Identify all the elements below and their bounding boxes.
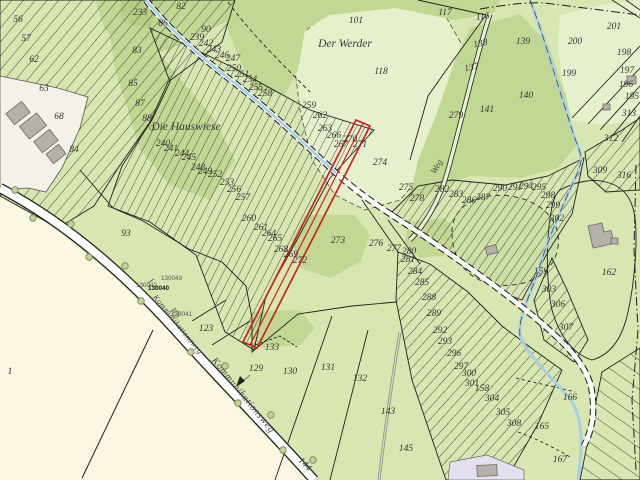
label-287: 287 <box>476 193 492 203</box>
label-68: 68 <box>54 112 64 122</box>
label-197: 197 <box>620 66 636 76</box>
label-86: 86 <box>158 19 168 29</box>
label-129: 129 <box>249 364 264 374</box>
label-284: 284 <box>408 267 423 277</box>
label-290: 290 <box>493 184 508 194</box>
label-130043: 130043 <box>161 275 183 282</box>
label-167: 167 <box>553 455 569 465</box>
label-285: 285 <box>415 278 430 288</box>
label-247: 247 <box>226 54 242 64</box>
label-305: 305 <box>495 408 511 418</box>
label-198: 198 <box>617 48 632 58</box>
label-265: 265 <box>268 234 283 244</box>
label-145: 145 <box>399 444 414 454</box>
label-56: 56 <box>13 15 23 25</box>
label-der-werder: Der Werder <box>317 38 372 50</box>
label-62: 62 <box>29 55 39 65</box>
building <box>477 464 498 476</box>
label-271: 271 <box>353 140 367 150</box>
label-131: 131 <box>321 363 335 373</box>
label-259: 259 <box>302 101 317 111</box>
tree-icon <box>68 221 74 227</box>
label-278: 278 <box>410 194 425 204</box>
label-196: 196 <box>619 80 634 90</box>
label-200: 200 <box>568 37 583 47</box>
tree-icon <box>280 447 286 453</box>
label-257: 257 <box>236 193 252 203</box>
label-133: 133 <box>265 343 280 353</box>
label-262: 262 <box>313 111 328 121</box>
label-312: 312 <box>603 134 619 144</box>
label-141: 141 <box>480 105 494 115</box>
label-93: 93 <box>121 229 131 239</box>
label-130041: 130041 <box>171 311 193 318</box>
label-288: 288 <box>422 293 437 303</box>
label-279: 279 <box>449 111 464 121</box>
label-63: 63 <box>39 84 49 94</box>
tree-icon <box>86 254 92 260</box>
map-viewport: 5657626368849312338286908385878810111711… <box>0 0 640 480</box>
label-281: 281 <box>401 255 415 265</box>
tree-icon <box>138 298 144 304</box>
label-162: 162 <box>602 268 617 278</box>
label-130: 130 <box>283 367 298 377</box>
label-258: 258 <box>258 89 273 99</box>
tree-icon <box>12 187 18 193</box>
tree-icon <box>310 457 316 463</box>
label-296: 296 <box>447 349 462 359</box>
label-233: 233 <box>133 8 148 18</box>
label-245: 245 <box>182 153 197 163</box>
label-313: 313 <box>621 109 637 119</box>
label-302: 302 <box>549 214 565 224</box>
label-306: 306 <box>550 300 566 310</box>
label-300: 300 <box>461 369 477 379</box>
label-57: 57 <box>21 34 32 44</box>
label-82: 82 <box>176 2 186 12</box>
label-274: 274 <box>373 158 388 168</box>
building <box>603 104 610 110</box>
label-123: 123 <box>199 324 214 334</box>
label-159: 159 <box>534 267 549 277</box>
label-282: 282 <box>435 185 450 195</box>
label-273: 273 <box>331 236 346 246</box>
label-84: 84 <box>69 145 79 155</box>
tree-icon <box>30 215 36 221</box>
label-87: 87 <box>135 99 146 109</box>
label-304: 304 <box>484 394 500 404</box>
label-199: 199 <box>562 69 577 79</box>
label-286: 286 <box>462 196 477 206</box>
label-die-hauswiese: Die Hauswiese <box>150 121 220 133</box>
label-277: 277 <box>387 244 403 254</box>
label-83: 83 <box>132 46 142 56</box>
label-117: 117 <box>438 8 453 18</box>
label-293: 293 <box>438 337 453 347</box>
label-165: 165 <box>535 422 550 432</box>
label-132: 132 <box>353 374 368 384</box>
label-140: 140 <box>519 91 534 101</box>
label-308: 308 <box>506 419 522 429</box>
label-195: 195 <box>625 92 640 102</box>
label-298: 298 <box>541 191 556 201</box>
building <box>611 238 618 244</box>
label-130040: 130040 <box>148 285 170 292</box>
label-1: 1 <box>8 367 13 377</box>
tree-icon <box>122 263 128 269</box>
label-201: 201 <box>607 22 621 32</box>
label-299: 299 <box>546 201 561 211</box>
label-85: 85 <box>128 79 138 89</box>
label-289: 289 <box>427 309 442 319</box>
label-139: 139 <box>516 37 531 47</box>
label-158: 158 <box>475 384 490 394</box>
label-118: 118 <box>374 67 388 77</box>
label-316: 316 <box>616 171 632 181</box>
label-101: 101 <box>349 16 363 26</box>
northeast-clearing <box>558 0 640 125</box>
label-292: 292 <box>433 326 448 336</box>
label-116: 116 <box>475 11 490 23</box>
label-272: 272 <box>293 256 308 266</box>
label-166: 166 <box>563 393 578 403</box>
cadastral-map[interactable]: 5657626368849312338286908385878810111711… <box>0 0 640 480</box>
label-275: 275 <box>399 183 414 193</box>
label-143: 143 <box>381 407 396 417</box>
label-307: 307 <box>558 323 575 333</box>
label-303: 303 <box>541 285 557 295</box>
label-276: 276 <box>369 239 384 249</box>
label-309: 309 <box>592 166 608 176</box>
